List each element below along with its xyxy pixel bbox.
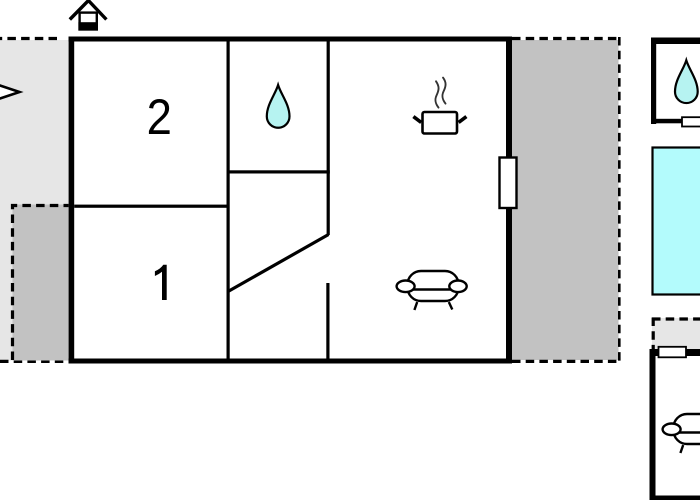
- svg-text:2: 2: [147, 90, 172, 146]
